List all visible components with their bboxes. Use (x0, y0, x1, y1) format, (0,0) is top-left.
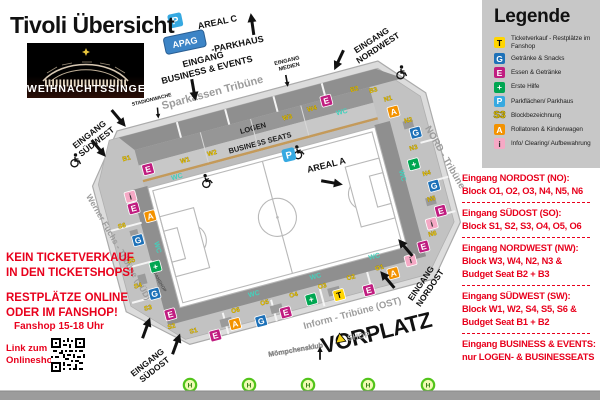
legend-label: Getränke & Snacks (511, 55, 564, 63)
marker-E-icon: E (141, 162, 154, 175)
legend-symbol-A-icon: A (494, 124, 505, 135)
marker-+-icon: + (305, 293, 318, 306)
dashed-separator (462, 285, 590, 286)
weihnachtssingen-banner: WEIHNACHTSSINGEN (27, 43, 144, 98)
marker-A-icon: A (228, 317, 241, 330)
legend-rows: TTicketverkauf - Restplätze im FanshopGG… (494, 35, 592, 149)
star-icon (82, 48, 90, 56)
areal-c-label: AREAL C (197, 13, 239, 31)
entrance-blocks: nur LOGEN- & BUSINESSEATS (462, 351, 598, 364)
rest-tickets-note: RESTPLÄTZE ONLINE ODER IM FANSHOP! (6, 291, 128, 320)
entrance-title: Eingang NORDWEST (NW): (462, 242, 598, 255)
legend-symbol-G-icon: G (494, 53, 505, 64)
marker-G-icon: G (148, 287, 161, 300)
note-line: KEIN TICKETVERKAUF (6, 251, 134, 266)
legend-symbol-+-icon: + (494, 82, 505, 93)
entrance-blocks: Block O1, O2, O3, N4, N5, N6 (462, 185, 598, 198)
entrance-title: Eingang SÜDWEST (SW): (462, 290, 598, 303)
dashed-separator (462, 333, 590, 334)
dashed-separator (462, 237, 590, 238)
marker-E-icon: E (209, 329, 222, 342)
entrance-title: Eingang BUSINESS & EVENTS: (462, 338, 598, 351)
legend-item-G: GGetränke & Snacks (494, 53, 592, 64)
marker-+-icon: + (407, 158, 420, 171)
arrow-down-stadionwache (155, 107, 160, 118)
entrance-blocks: Block W1, W2, S4, S5, S6 & (462, 303, 598, 316)
marker-i-icon: i (124, 190, 137, 203)
note-line: RESTPLÄTZE ONLINE (6, 291, 128, 306)
legend-label: Info/ Clearing/ Aufbewahrung (511, 140, 591, 148)
legend-label: Erste Hilfe (511, 83, 539, 91)
svg-text:H: H (188, 382, 193, 389)
marker-E-icon: E (434, 204, 447, 217)
note-line: ODER IM FANSHOP! (6, 306, 128, 321)
marker-G-icon: G (409, 126, 422, 139)
entrance-section: Eingang NORDOST (NO):Block O1, O2, O3, N… (462, 172, 598, 198)
entrance-section: Eingang NORDWEST (NW):Block W3, W4, N2, … (462, 242, 598, 281)
page-title: Tivoli Übersicht (10, 12, 174, 39)
note-line: IN DEN TICKETSHOPS! (6, 266, 134, 281)
marker-G-icon: G (131, 233, 144, 246)
legend-symbol-E-icon: E (494, 67, 505, 78)
entrance-blocks: Budget Seat B2 + B3 (462, 268, 598, 281)
svg-text:EINGANG MEDIEN: EINGANG MEDIEN (274, 55, 303, 74)
fanshop-hours: Fanshop 15-18 Uhr (14, 321, 104, 332)
bus-stop-icon: H (184, 379, 196, 391)
legend-label: Essen & Getränke (511, 69, 561, 77)
svg-text:EINGANG SÜDOST: EINGANG SÜDOST (129, 345, 174, 387)
legend-label: Rollatoren & Kinderwagen (511, 126, 583, 134)
marker-E-icon: E (362, 283, 375, 296)
areal-c-group: P AREAL C APAG -PARKHAUS (163, 12, 265, 55)
marker-E-icon: E (320, 94, 333, 107)
bus-stop-icon: H (422, 379, 434, 391)
entrance-blocks: Budget Seat B1 + B2 (462, 316, 598, 329)
entrance-title: Eingang SÜDOST (SO): (462, 207, 598, 220)
legend-item-E: EEssen & Getränke (494, 67, 592, 78)
legend-symbol-i-icon: i (494, 138, 505, 149)
arrow-up-areal-c (246, 12, 258, 35)
legend-item-A: ARollatoren & Kinderwagen (494, 124, 592, 135)
marker-A-icon: A (144, 209, 157, 222)
legend-panel: Legende TTicketverkauf - Restplätze im F… (482, 0, 600, 168)
bus-stop-icon: H (243, 379, 255, 391)
legend-item-i: iInfo/ Clearing/ Aufbewahrung (494, 138, 592, 149)
banner-text: WEIHNACHTSSINGEN (27, 83, 144, 95)
bus-stop-icon: H (362, 379, 374, 391)
marker-i-icon: i (425, 217, 438, 230)
marker-G-icon: G (254, 314, 267, 327)
marker-E-icon: E (417, 240, 430, 253)
legend-item-T: TTicketverkauf - Restplätze im Fanshop (494, 35, 592, 50)
legend-item-P: PParkflächen/ Parkhaus (494, 96, 592, 107)
entrance-title: Eingang NORDOST (NO): (462, 172, 598, 185)
legend-item-S3: S3Blockbezeichnung (494, 110, 592, 121)
entrance-blocks: Block S1, S2, S3, O4, O5, O6 (462, 220, 598, 233)
svg-text:H: H (366, 382, 371, 389)
legend-symbol-P-icon: P (494, 96, 505, 107)
svg-text:EINGANG NORDWEST: EINGANG NORDWEST (349, 21, 402, 65)
marker-A-icon: A (387, 105, 400, 118)
stadium-overview-page: LOGEN BUSINESS SEATS (0, 0, 600, 400)
legend-title: Legende (494, 6, 592, 28)
no-ticket-sale-note: KEIN TICKETVERKAUF IN DEN TICKETSHOPS! (6, 251, 134, 280)
marker-E-icon: E (279, 306, 292, 319)
dashed-separator (462, 202, 590, 203)
marker-G-icon: G (427, 179, 440, 192)
road (0, 391, 600, 400)
moempchensklub-label: Mömpchensklub (268, 342, 324, 358)
svg-text:H: H (426, 382, 431, 389)
legend-label: Parkflächen/ Parkhaus (511, 98, 573, 106)
marker-E-icon: E (127, 202, 140, 215)
legend-symbol-S3-icon: S3 (494, 110, 505, 121)
marker-A-icon: A (387, 267, 400, 280)
entrance-section: Eingang SÜDOST (SO):Block S1, S2, S3, O4… (462, 207, 598, 233)
legend-item-+: +Erste Hilfe (494, 82, 592, 93)
marker-+-icon: + (149, 260, 162, 273)
svg-text:H: H (306, 382, 311, 389)
legend-label: Blockbezeichnung (511, 112, 561, 120)
qr-code (51, 338, 85, 372)
entrance-section: Eingang BUSINESS & EVENTS:nur LOGEN- & B… (462, 338, 598, 364)
marker-E-icon: E (164, 308, 177, 321)
marker-T-icon: T (332, 288, 345, 301)
legend-label: Ticketverkauf - Restplätze im Fanshop (511, 35, 592, 50)
svg-text:H: H (247, 382, 252, 389)
bus-stop-icon: H (302, 379, 314, 391)
entrance-section: Eingang SÜDWEST (SW):Block W1, W2, S4, S… (462, 290, 598, 329)
entrance-info: Eingang NORDOST (NO):Block O1, O2, O3, N… (462, 172, 598, 364)
arrow-downleft-nordwest (330, 48, 347, 72)
bus-stops: HHHHH (184, 379, 434, 391)
entrance-blocks: Block W3, W4, N2, N3 & (462, 255, 598, 268)
legend-symbol-T-icon: T (494, 37, 505, 48)
